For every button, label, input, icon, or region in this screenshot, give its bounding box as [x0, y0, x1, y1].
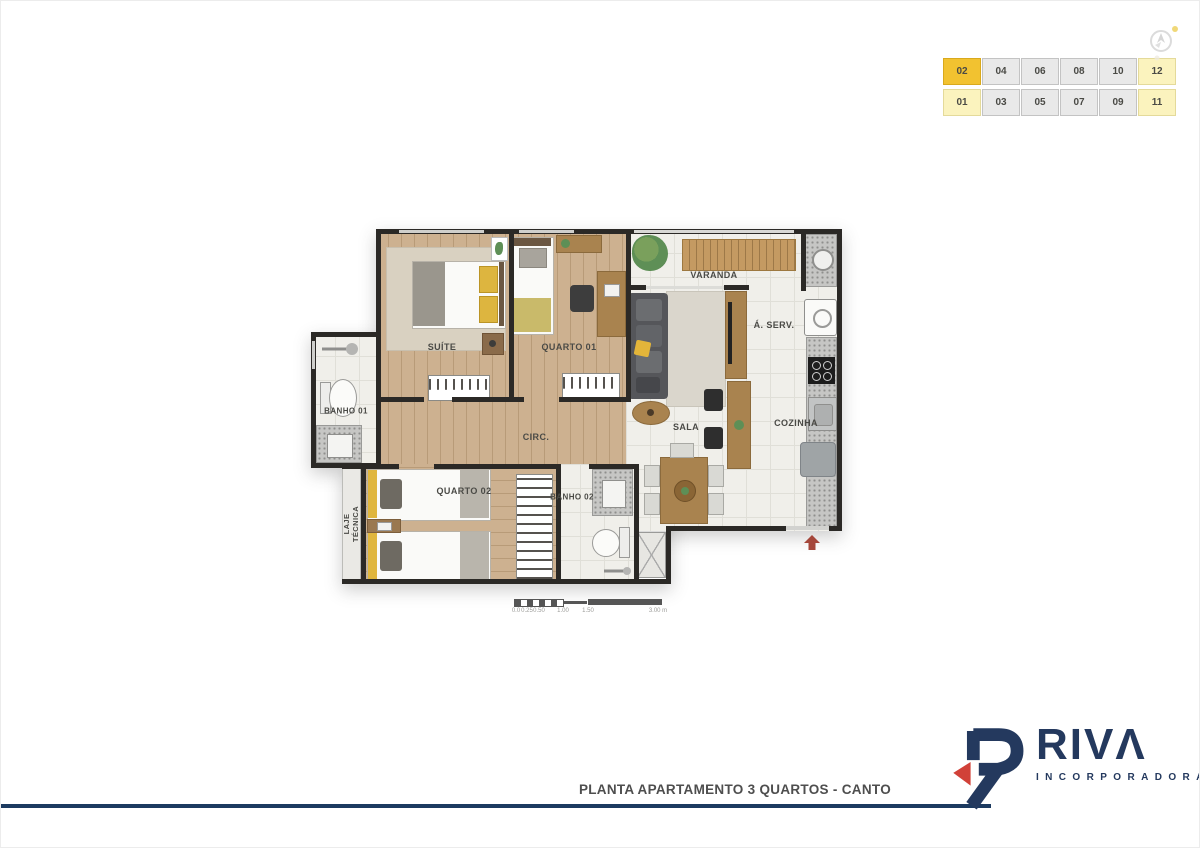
stove — [808, 357, 835, 384]
window — [312, 341, 315, 369]
bed-pillow — [479, 266, 498, 293]
wall — [626, 285, 646, 290]
burner — [812, 372, 821, 381]
unit-cell-03[interactable]: 03 — [982, 89, 1020, 116]
riva-wordmark: RIVΛ — [1036, 723, 1200, 767]
varanda-threshold — [646, 286, 724, 289]
window — [519, 230, 574, 233]
page: 02 04 06 08 10 12 01 03 05 07 09 11 — [0, 0, 1200, 848]
wall — [666, 531, 671, 584]
decor-leaf — [495, 242, 503, 255]
wall — [311, 332, 381, 337]
toilet-bowl — [592, 529, 620, 557]
shower-icon — [318, 335, 370, 365]
wall — [666, 526, 786, 531]
unit-cell-05[interactable]: 05 — [1021, 89, 1059, 116]
sideboard — [727, 381, 751, 469]
banho02-vanity — [592, 469, 633, 516]
room-label-quarto01: QUARTO 01 — [542, 342, 597, 352]
wall — [589, 464, 639, 469]
bed-headboard — [513, 238, 551, 246]
footer-divider — [1, 804, 991, 808]
quarto02-nightstand — [367, 519, 401, 533]
scale-checker — [514, 599, 564, 607]
unit-cell-09[interactable]: 09 — [1099, 89, 1137, 116]
unit-cell-07[interactable]: 07 — [1060, 89, 1098, 116]
scale-tick: 3.00 m — [649, 608, 667, 614]
vanity-sink — [327, 434, 353, 458]
washer-door — [813, 309, 832, 328]
riva-logo-mark — [946, 723, 1028, 811]
unit-cell-04[interactable]: 04 — [982, 58, 1020, 85]
room-label-area-servico: Á. SERV. — [754, 320, 795, 330]
bed-headboard-yellow — [368, 470, 377, 518]
unit-cell-01[interactable]: 01 — [943, 89, 981, 116]
plant — [561, 239, 570, 248]
yellow-pillow — [634, 340, 652, 358]
quarto02-bed-2 — [367, 531, 491, 583]
quarto01-shelf — [556, 235, 602, 253]
scale-tick: 1.50 — [582, 608, 594, 614]
sala-chair-dark — [704, 389, 723, 411]
room-label-banho01: BANHO 01 — [324, 407, 368, 416]
wall — [376, 229, 381, 337]
vanity-sink — [602, 480, 626, 508]
unit-keyplan: 02 04 06 08 10 12 01 03 05 07 09 11 — [943, 58, 1185, 120]
wall — [361, 464, 366, 584]
sofa-cushion — [636, 299, 662, 321]
scale-bar: 0.0 0.25 0.50 1.00 1.50 3.00 m — [514, 597, 666, 617]
wall — [342, 464, 399, 469]
wall — [634, 464, 639, 584]
bed-pillow-dark — [380, 479, 402, 509]
dining-chair — [644, 493, 660, 515]
fridge — [800, 442, 836, 477]
suite-double-bed — [412, 261, 506, 329]
room-label-laje-tecnica: LAJE TÉCNICA — [342, 502, 360, 546]
washing-machine — [804, 299, 837, 336]
bed-blanket — [413, 262, 445, 326]
burner — [812, 361, 821, 370]
sofa-cushion — [636, 377, 660, 393]
scale-segment — [564, 601, 587, 604]
window — [399, 230, 484, 233]
service-shaft — [637, 532, 666, 578]
banho01-vanity — [316, 425, 362, 463]
room-label-varanda: VARANDA — [690, 270, 737, 280]
table-detail — [647, 409, 654, 416]
floor-plan: SUÍTE QUARTO 01 VARANDA Á. SERV. SALA CO… — [304, 229, 844, 591]
suite-stool — [482, 333, 504, 355]
bed-blanket — [513, 298, 551, 332]
scale-segment — [588, 599, 662, 605]
keyplan-row-bottom: 01 03 05 07 09 11 — [943, 89, 1185, 116]
wall — [434, 464, 558, 469]
scale-tick: 0.25 — [521, 608, 533, 614]
wall — [509, 229, 514, 402]
laptop — [604, 284, 620, 297]
varanda-plant — [632, 235, 668, 271]
floor-corridor — [376, 397, 631, 464]
dining-chair — [644, 465, 660, 487]
dining-table — [660, 457, 708, 524]
plant — [734, 420, 744, 430]
stool-detail — [489, 340, 496, 347]
unit-cell-08[interactable]: 08 — [1060, 58, 1098, 85]
toilet — [592, 527, 632, 557]
wall — [837, 229, 842, 531]
scale-tick: 0.50 — [533, 608, 545, 614]
dining-chair — [708, 493, 724, 515]
room-label-quarto02: QUARTO 02 — [437, 486, 492, 496]
wall — [626, 229, 631, 402]
room-label-sala: SALA — [673, 422, 699, 432]
shower-icon — [600, 563, 634, 579]
table-centerpiece — [674, 480, 696, 502]
entrance-arrow-icon — [803, 534, 821, 552]
suite-decor-panel — [491, 237, 508, 261]
bed-blanket — [460, 532, 489, 580]
wall — [724, 285, 749, 290]
laundry-tank — [812, 249, 834, 271]
sala-sofa — [628, 293, 668, 399]
unit-cell-06[interactable]: 06 — [1021, 58, 1059, 85]
quarto01-chair — [570, 285, 594, 312]
quarto01-desk — [597, 271, 626, 337]
unit-cell-02[interactable]: 02 — [943, 58, 981, 85]
room-label-circ: CIRC. — [523, 432, 550, 442]
wall — [342, 579, 671, 584]
riva-subtitle: INCORPORADORA — [1036, 772, 1200, 783]
riva-logo-text: RIVΛ INCORPORADORA — [1036, 723, 1200, 783]
bed-headboard — [499, 262, 504, 326]
dining-chair — [670, 443, 694, 458]
drawer — [377, 522, 392, 531]
varanda-bench — [682, 239, 796, 271]
aserv-tank-counter — [804, 234, 837, 287]
tv-screen — [728, 302, 732, 364]
quarto01-single-bed — [512, 237, 554, 335]
riva-logo: RIVΛ INCORPORADORA — [946, 723, 1200, 811]
coffee-table — [632, 401, 670, 425]
room-label-suite: SUÍTE — [428, 342, 457, 352]
entrance-threshold — [786, 526, 829, 530]
plan-title: PLANTA APARTAMENTO 3 QUARTOS - CANTO — [471, 782, 891, 797]
unit-cell-10[interactable]: 10 — [1099, 58, 1137, 85]
wall — [556, 464, 561, 584]
plant — [681, 487, 689, 495]
burner — [823, 372, 832, 381]
bed-pillow — [519, 248, 547, 268]
wall — [376, 397, 424, 402]
bed-pillow — [479, 296, 498, 323]
room-label-banho02: BANHO 02 — [550, 493, 594, 502]
unit-cell-11[interactable]: 11 — [1138, 89, 1176, 116]
room-label-cozinha: COZINHA — [774, 418, 818, 428]
quarto02-wardrobe — [516, 474, 553, 580]
dining-chair — [708, 465, 724, 487]
wall — [452, 397, 514, 402]
logo-red-triangle — [953, 762, 970, 786]
wall — [829, 526, 842, 531]
tv-panel — [725, 291, 747, 379]
scale-tick: 0.0 — [512, 608, 520, 614]
bed-pillow-dark — [380, 541, 402, 571]
varanda-railing — [634, 230, 794, 233]
scale-tick: 1.00 — [557, 608, 569, 614]
bed-headboard-yellow — [368, 532, 377, 580]
burner — [823, 361, 832, 370]
toilet-tank — [619, 527, 630, 558]
wall — [559, 397, 626, 402]
north-compass-icon — [1147, 23, 1181, 63]
sala-chair-dark — [704, 427, 723, 449]
wall — [801, 229, 806, 291]
